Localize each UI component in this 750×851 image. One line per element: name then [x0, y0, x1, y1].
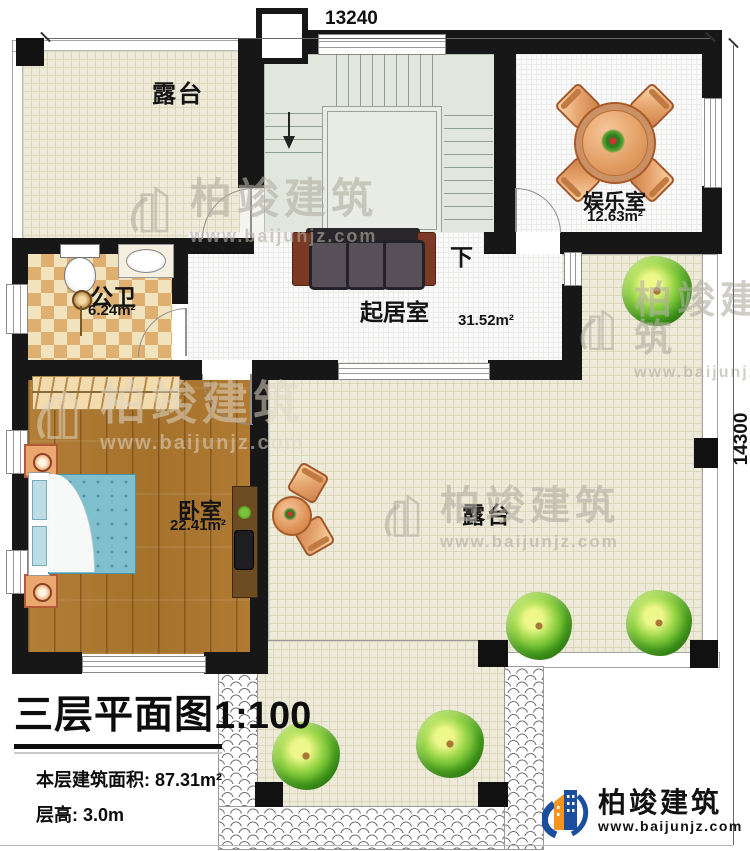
- tree-terrace-s2: [626, 590, 692, 656]
- doorway-entertainment: [516, 232, 560, 254]
- label-stairs-down: 下: [450, 238, 473, 272]
- wall-bath-right-upper: [172, 238, 188, 304]
- wardrobe-rail: [32, 391, 178, 393]
- wall-ent-left: [494, 54, 516, 234]
- wall-bed-bottom-left: [12, 652, 82, 674]
- tree-terrace-s1: [506, 592, 572, 660]
- title-underline-thin: [14, 752, 222, 754]
- tree-bottom-2: [416, 710, 484, 778]
- desk-monitor: [234, 530, 254, 570]
- roof-skirt-right: [504, 666, 544, 850]
- title-underline: [14, 744, 222, 749]
- sink-basin: [126, 249, 166, 273]
- plan-title: 三层平面图: [14, 684, 214, 740]
- label-terrace-top: 露台: [152, 74, 204, 109]
- wall-living-right: [562, 284, 582, 362]
- door-bathroom-leaf: [185, 308, 187, 356]
- stair-landing: [322, 106, 442, 235]
- roof-shaft: [256, 8, 308, 64]
- label-terrace-right: 露台: [462, 496, 512, 530]
- floor-height-line: 层高: 3.0m: [36, 801, 311, 827]
- door-terrace-leaf: [250, 188, 252, 238]
- sofa-cushion-2: [346, 240, 388, 290]
- area-bathroom: 6.24m²: [88, 302, 136, 319]
- area-bedroom: 22.41m²: [170, 517, 226, 534]
- wall-ent-right-upper: [702, 54, 722, 98]
- shower-hose: [80, 306, 82, 336]
- wardrobe: [32, 376, 180, 410]
- sofa-cushion-3: [383, 240, 425, 290]
- title-block: 三层平面图1:100 本层建筑面积: 87.31m² 层高: 3.0m: [14, 684, 311, 827]
- stair-flight-right: [444, 106, 493, 233]
- wall-bed-left: [12, 374, 28, 674]
- sheet-bottom-rule: [0, 845, 733, 846]
- wall-bed-bottom-right: [204, 652, 268, 674]
- area-entertainment: 12.63m²: [587, 208, 643, 225]
- dimension-right-value: 14300: [731, 409, 750, 469]
- window-living-bottom-slider: [338, 363, 490, 380]
- door-bedroom-leaf: [250, 374, 252, 424]
- window-bath-left: [6, 284, 28, 334]
- window-living-right: [564, 252, 582, 286]
- wall-stair-living-stub: [484, 232, 516, 254]
- brand-logo-icon: [542, 782, 590, 840]
- plan-scale: 1:100: [214, 695, 311, 738]
- stair-direction-arrowhead: [283, 136, 295, 149]
- column-bottom-terrace-ne: [478, 640, 508, 667]
- wall-living-bottom-right: [488, 360, 582, 380]
- window-bed-bottom: [82, 656, 206, 673]
- column-bottom-terrace-se: [478, 782, 508, 807]
- dimension-line-top: [45, 38, 710, 39]
- door-entertainment-leaf: [515, 188, 517, 232]
- sofa-cushion-1: [309, 240, 351, 290]
- bed: [28, 472, 136, 574]
- floor-area-line: 本层建筑面积: 87.31m²: [36, 766, 311, 792]
- column-terrace-right-mid: [694, 438, 718, 468]
- stair-flight-upper: [336, 55, 444, 106]
- brand-url: www.baijunjz.com: [598, 818, 743, 834]
- nightstand-bottom: [24, 574, 58, 608]
- floor-plan-sheet: 露台 娱乐室 12.63m² 公卫 6.24m² 起居室 31.52m² 卧室 …: [0, 0, 750, 851]
- wall-ent-bottom: [560, 232, 722, 254]
- brand-name: 柏竣建筑: [598, 788, 743, 819]
- bed-pillow-1: [32, 480, 47, 520]
- dimension-top-value: 13240: [325, 8, 378, 30]
- window-ent-right: [704, 98, 722, 188]
- label-living: 起居室: [360, 293, 429, 327]
- toilet-tank: [60, 244, 100, 258]
- ent-table-plant: [601, 129, 625, 153]
- column-terrace-right-bottom: [690, 640, 718, 668]
- desk-plant: [238, 506, 251, 519]
- brand-block: 柏竣建筑 www.baijunjz.com: [542, 782, 743, 840]
- terrace-table-plant: [283, 507, 297, 521]
- terrace-top-column: [16, 38, 44, 66]
- tree-terrace-ne: [622, 256, 692, 326]
- stair-direction-arrow: [288, 112, 290, 136]
- area-living: 31.52m²: [458, 312, 514, 329]
- bed-pillow-2: [32, 526, 47, 566]
- sofa: [292, 228, 434, 288]
